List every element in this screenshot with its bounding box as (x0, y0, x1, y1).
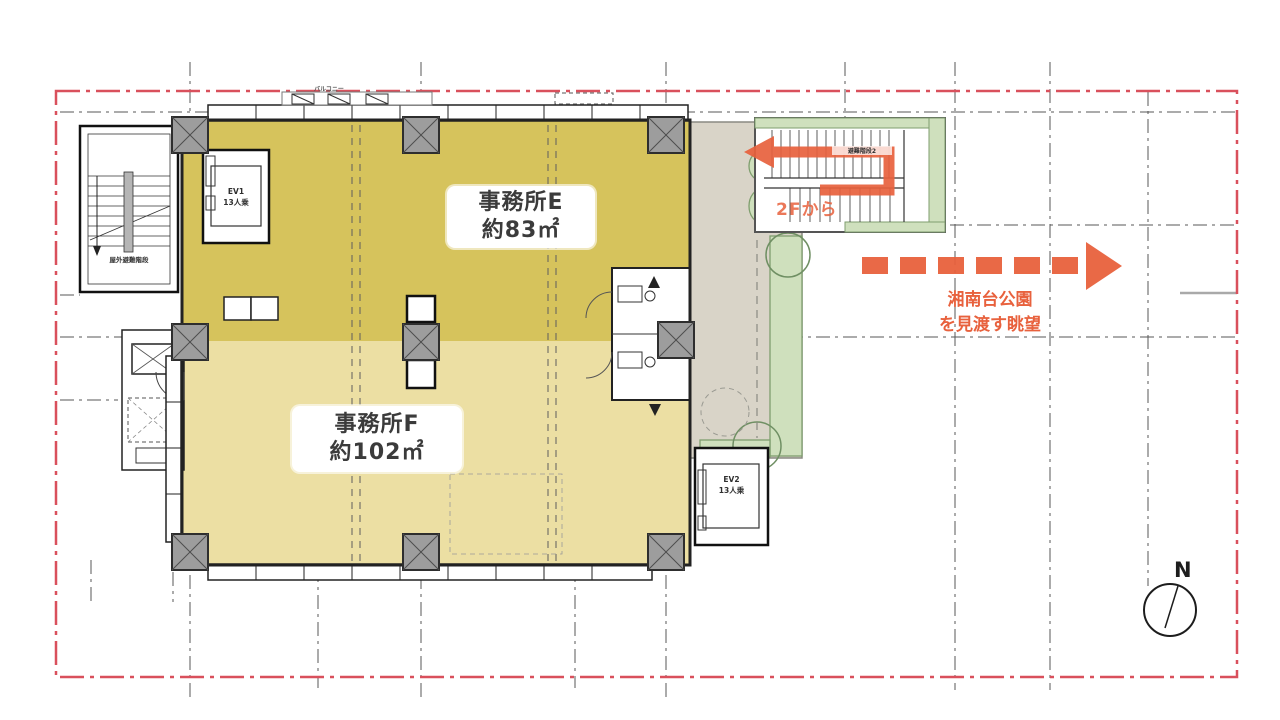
window-band-left (166, 356, 181, 542)
ev1-capacity: 13人乗 (203, 197, 269, 208)
balcony-top-strip (282, 92, 613, 105)
elevator-ev2 (695, 448, 768, 545)
balcony-top-label: バルコニー (294, 84, 364, 93)
from-2f-note: 2Fから (776, 195, 837, 220)
north-compass-icon (1144, 584, 1196, 636)
office-f-name: 事務所F (334, 411, 419, 439)
view-note: 湘南台公園 を見渡す眺望 (880, 288, 1100, 338)
ev2-capacity: 13人乗 (695, 485, 768, 496)
office-f-label: 事務所F 約102㎡ (292, 406, 462, 472)
office-e-name: 事務所E (478, 189, 563, 217)
floorplan-drawing (0, 0, 1280, 720)
ev2-name: EV2 (695, 474, 768, 485)
outdoor-stair-label: 屋外避難階段 (84, 254, 174, 264)
office-f-size: 約102㎡ (330, 439, 425, 467)
view-note-line2: を見渡す眺望 (880, 313, 1100, 338)
ev1-label: EV1 13人乗 (203, 186, 269, 208)
office-e-label: 事務所E 約83㎡ (447, 186, 595, 248)
escape-stair2-label: 避難階段2 (832, 146, 892, 155)
service-boxes (224, 297, 278, 320)
north-label: N (1174, 558, 1192, 582)
ev2-label: EV2 13人乗 (695, 474, 768, 496)
office-e-size: 約83㎡ (482, 217, 561, 245)
floor-plan-canvas: 事務所E 約83㎡ 事務所F 約102㎡ 2Fから 湘南台公園 を見渡す眺望 E… (0, 0, 1280, 720)
view-direction-arrow (862, 242, 1122, 290)
staircase-outdoor-left (80, 126, 178, 292)
view-note-line1: 湘南台公園 (880, 288, 1100, 313)
ev1-name: EV1 (203, 186, 269, 197)
